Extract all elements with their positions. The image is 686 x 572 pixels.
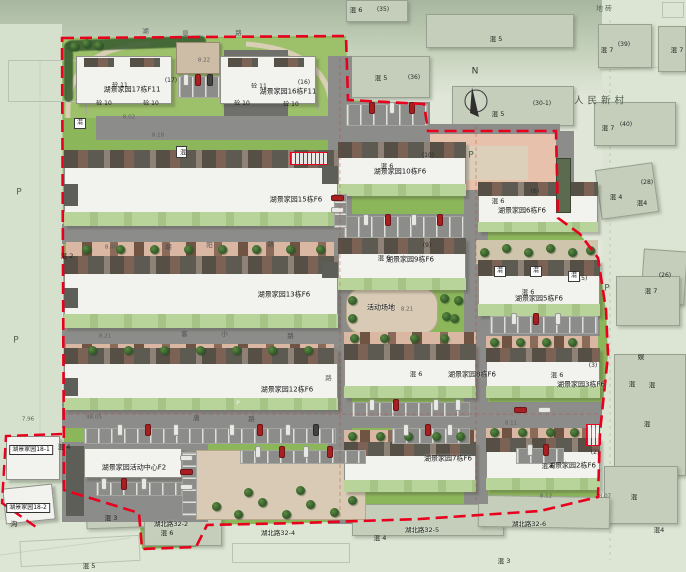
building-label: 湖景家园7栋F6 — [424, 456, 472, 463]
building-label: 湖景家园3栋F6 — [557, 382, 605, 389]
material-label: 混 6 — [410, 371, 423, 378]
elevation-label: 8.21 — [401, 307, 413, 313]
material-label: 混 6 — [551, 372, 564, 379]
material-label: 娱 — [638, 354, 645, 361]
material-label: 混 3 — [105, 515, 118, 522]
material-label: 混 3 — [498, 558, 511, 565]
elevation-label: 8.07 — [599, 494, 611, 500]
material-label: 混 5 — [492, 111, 505, 118]
address-label: 湖北路32-4 — [261, 530, 295, 537]
material-label: 混 5 — [490, 36, 503, 43]
material-label: 混 5 — [83, 563, 96, 570]
road-name-char: 朝 — [165, 244, 173, 251]
road-name-char: 小 — [221, 331, 229, 338]
address-label: 湖景家园18-1 — [9, 445, 53, 455]
material-label: 混 6 — [522, 289, 535, 296]
material-label: 混 — [644, 421, 651, 428]
material-label: 混 — [649, 382, 656, 389]
parking-label: P — [468, 152, 473, 161]
road-name-char: 湖 — [142, 28, 150, 35]
material-label: 混 4 — [610, 194, 623, 201]
building-number: (10) — [422, 153, 434, 159]
elevation-label: 8.46 — [105, 245, 117, 251]
material-label: 混 4 — [58, 444, 71, 451]
building-label: 湖景家园5栋F6 — [515, 296, 563, 303]
material-note: 砼 10 — [283, 102, 299, 108]
material-label: 混 6 — [492, 198, 505, 205]
material-note: 砼 11 — [251, 84, 267, 90]
building-label: 湖景家园9栋F6 — [386, 257, 434, 264]
elevation-label: 8.02 — [123, 115, 135, 121]
building-number: (35) — [377, 7, 389, 13]
building-number: (17) — [165, 78, 177, 84]
material-label: 混 7 — [671, 47, 684, 54]
material-note: 砼 11 — [112, 83, 128, 89]
building-label: 活动场地 — [367, 305, 395, 312]
elevation-label: 8.18 — [152, 133, 164, 139]
material-label: 混 7 — [645, 288, 658, 295]
area-label: 地砖 — [596, 6, 614, 13]
road-name-char: 路 — [267, 241, 275, 248]
address-label: 湖北路32-2 — [154, 521, 188, 528]
building-number: (26) — [659, 273, 671, 279]
road-name-char: 唐 — [193, 415, 201, 422]
building-number: (28) — [641, 180, 653, 186]
material-label: 混 6 — [378, 255, 391, 262]
parking-label: P — [16, 189, 21, 198]
building-number: (2) — [591, 450, 600, 456]
building-number: (6) — [531, 189, 540, 195]
material-label: 混4 — [637, 200, 648, 207]
building-number: (5) — [579, 276, 588, 282]
building-label: 湖景家园12栋F6 — [261, 387, 313, 394]
elevation-label: 7.96 — [22, 417, 34, 423]
material-label: 混 6 — [381, 163, 394, 170]
elevation-label: 8.11 — [505, 421, 517, 427]
parking-label: P — [236, 401, 240, 407]
elevation-label: 48.05 — [86, 415, 102, 421]
building-label: 湖景家园13栋F6 — [258, 292, 310, 299]
address-label: 湖北路32-6 — [512, 521, 546, 528]
material-label: 混 6 — [542, 463, 555, 470]
building-label: 湖景家园6栋F6 — [498, 208, 546, 215]
building-number: (39) — [618, 42, 630, 48]
road-name-char: 路 — [235, 30, 243, 37]
building-label: 湖景家园2栋F6 — [548, 463, 596, 470]
material-label: 混 7 — [602, 125, 615, 132]
building-number: (9) — [423, 243, 432, 249]
road-name-char: 路 — [325, 375, 333, 382]
parking-label: P — [13, 337, 18, 346]
material-label: 混 5 — [375, 75, 388, 82]
material-label: 混 — [629, 381, 636, 388]
building-number: (3) — [589, 363, 598, 369]
material-note: 砼 10 — [96, 101, 112, 107]
material-note: 砼 10 — [143, 101, 159, 107]
building-number: (40) — [620, 122, 632, 128]
material-label: 沟 — [11, 521, 18, 528]
road-name-char: 客 — [181, 331, 189, 338]
building-label: 湖景家园16栋F11 — [260, 89, 317, 96]
building-number: (30-1) — [533, 101, 551, 107]
north-label: N — [472, 68, 479, 77]
road-name-char: 路 — [287, 333, 295, 340]
elevation-label: 8.22 — [198, 58, 210, 64]
material-label: 混 — [631, 494, 638, 501]
material-label: 混 6 — [350, 7, 363, 14]
material-note: 砼 10 — [234, 101, 250, 107]
road-name-char: 阳 — [206, 242, 214, 249]
road-name-char: 路 — [248, 416, 256, 423]
material-label: 混 2 — [61, 253, 74, 260]
road-name-char: 景 — [182, 31, 190, 38]
building-number: (36) — [408, 75, 420, 81]
material-label: 混 7 — [601, 47, 614, 54]
building-label: 湖景家园活动中心F2 — [102, 465, 166, 472]
district-label: 人民新村 — [574, 96, 628, 106]
elevation-label: 8.12 — [540, 494, 552, 500]
building-label: 湖景家园8栋F6 — [448, 372, 496, 379]
parking-label: P — [604, 285, 609, 294]
elevation-label: 8.21 — [99, 334, 111, 340]
site-plan-canvas: 混混混混混 湖景家园17栋F11湖景家园16栋F11湖景家园15栋F6湖景家园1… — [0, 0, 686, 572]
address-label: 湖北路32-5 — [405, 527, 439, 534]
material-label: 混 6 — [161, 530, 174, 537]
building-number: (16) — [298, 80, 310, 86]
material-label: 混 4 — [374, 535, 387, 542]
address-label: 湖景家园18-2 — [6, 503, 50, 513]
building-label: 湖景家园15栋F6 — [270, 197, 322, 204]
material-label: 混4 — [654, 527, 665, 534]
